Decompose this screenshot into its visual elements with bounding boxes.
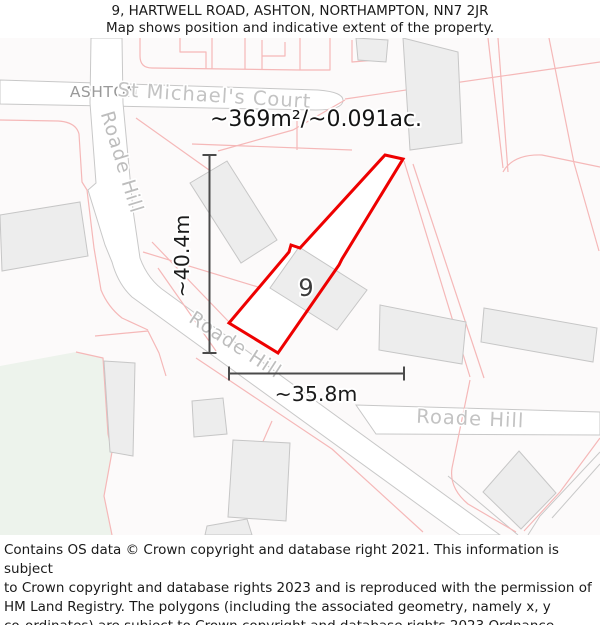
building (483, 451, 556, 529)
building (0, 202, 88, 271)
building (192, 398, 227, 437)
plot-number: 9 (298, 274, 313, 302)
label-roade-hill-lower: Roade Hill (416, 405, 525, 433)
footer-line: co-ordinates) are subject to Crown copyr… (4, 617, 596, 625)
map-svg: ASHTON St Michael's Court Roade Hill Roa… (0, 38, 600, 535)
building (190, 161, 277, 263)
building (403, 38, 462, 150)
green-space (0, 352, 112, 535)
building (356, 38, 388, 62)
footer-line: Contains OS data © Crown copyright and d… (4, 541, 596, 579)
map-canvas: ASHTON St Michael's Court Roade Hill Roa… (0, 38, 600, 535)
title-block: 9, HARTWELL ROAD, ASHTON, NORTHAMPTON, N… (0, 0, 600, 38)
building (379, 305, 466, 364)
copyright-footer: Contains OS data © Crown copyright and d… (0, 535, 600, 625)
property-map-page: 9, HARTWELL ROAD, ASHTON, NORTHAMPTON, N… (0, 0, 600, 625)
vertical-dimension-label: ~40.4m (170, 215, 194, 298)
building (481, 308, 597, 362)
page-title: 9, HARTWELL ROAD, ASHTON, NORTHAMPTON, N… (0, 3, 600, 20)
building (205, 519, 252, 535)
footer-line: HM Land Registry. The polygons (includin… (4, 598, 596, 617)
area-label: ~369m²/~0.091ac. (210, 107, 422, 132)
page-subtitle: Map shows position and indicative extent… (0, 20, 600, 37)
building (228, 440, 290, 521)
footer-line: to Crown copyright and database rights 2… (4, 579, 596, 598)
horizontal-dimension-label: ~35.8m (275, 382, 358, 406)
